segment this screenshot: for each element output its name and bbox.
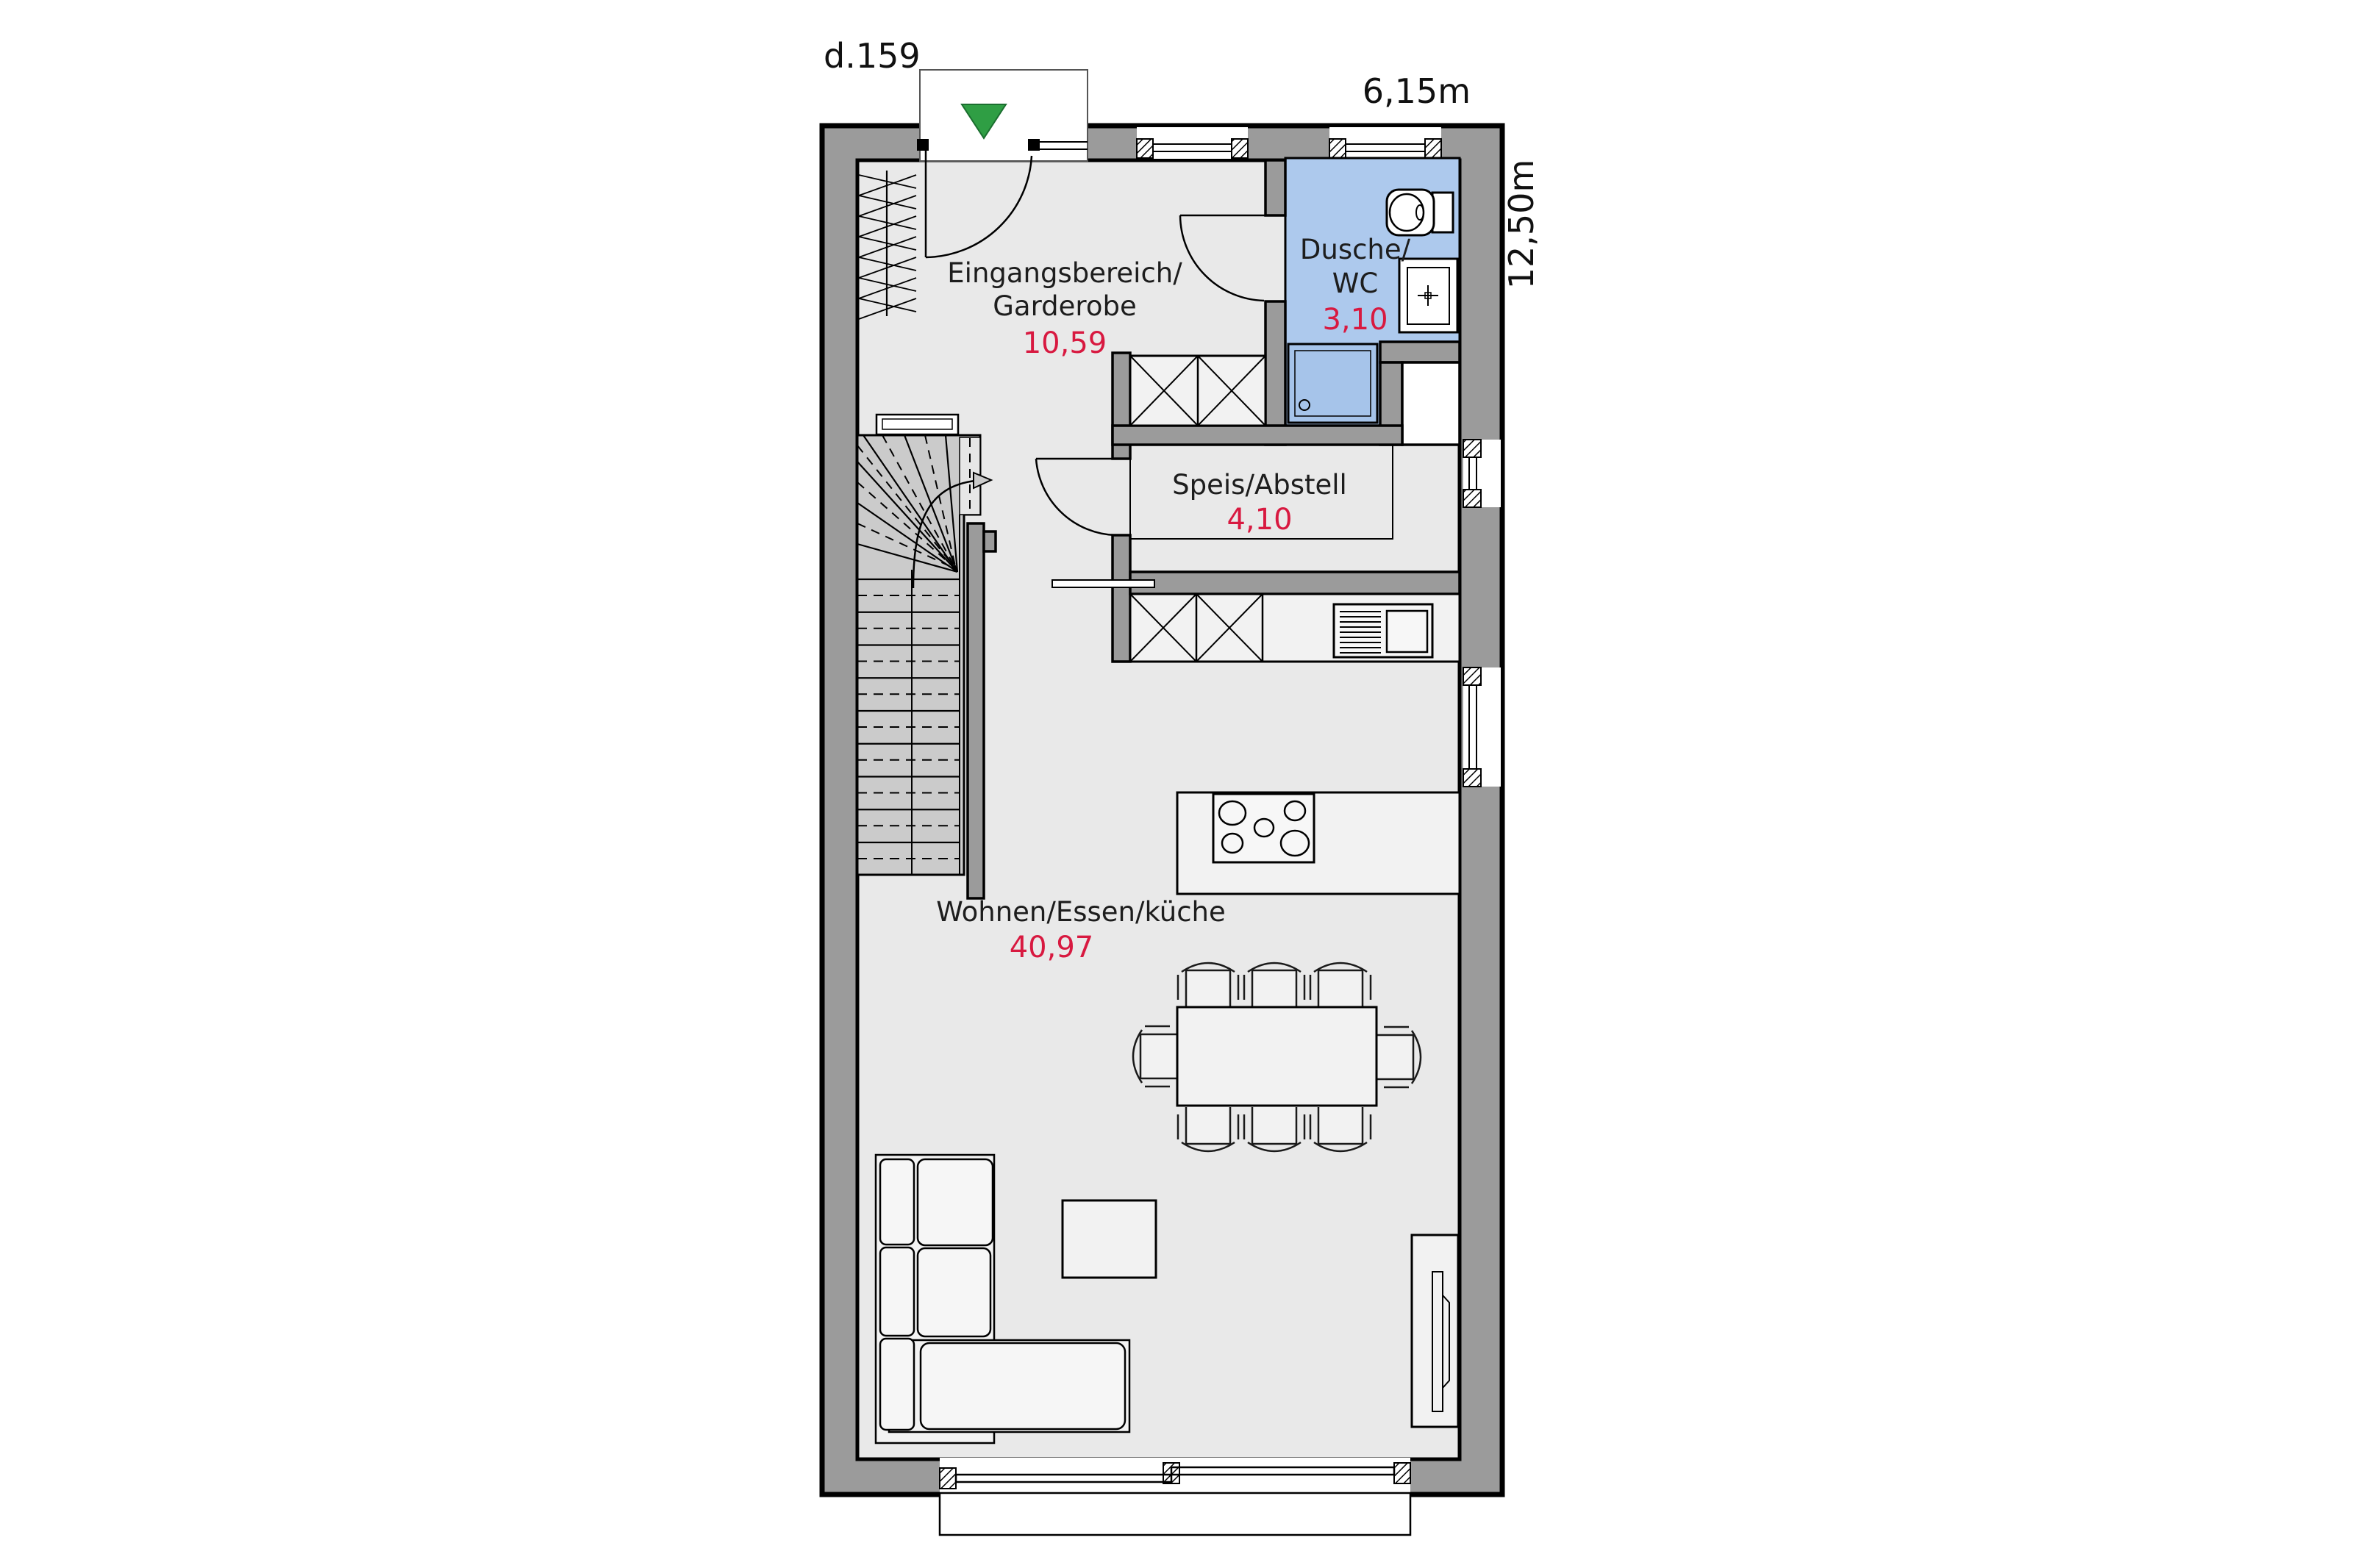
bath-label-2: WC	[1332, 268, 1378, 299]
floor-plan-page: d.159 6,15m 12,50m Eingangsbereich/ Gard…	[0, 0, 2353, 1568]
living-area: 40,97	[1010, 931, 1094, 964]
chair	[1178, 1107, 1238, 1151]
chair	[1310, 1107, 1371, 1151]
chair	[1178, 963, 1238, 1007]
stair-bench	[876, 415, 958, 434]
wall-kitchen	[1130, 572, 1460, 594]
entrance-label-1: Eingangsbereich/	[947, 257, 1182, 289]
chair	[1377, 1027, 1421, 1087]
side-table	[1063, 1200, 1156, 1278]
storage-area: 4,10	[1227, 503, 1292, 537]
duct-void	[1402, 362, 1460, 445]
door-jamb-right	[1028, 139, 1040, 151]
dining-table	[1177, 1007, 1377, 1106]
shower	[1288, 344, 1377, 423]
sideboard	[1412, 1235, 1458, 1427]
kitchen-sink-icon	[1334, 604, 1432, 657]
storage-label: Speis/Abstell	[1172, 469, 1347, 501]
wall-bath-lower	[1265, 301, 1285, 445]
depth-dimension: 12,50m	[1502, 160, 1541, 290]
stair-guard-wall	[968, 523, 984, 898]
entrance-label-2: Garderobe	[993, 290, 1136, 322]
wall-below-closet	[1113, 426, 1402, 445]
plan-title: d.159	[824, 36, 921, 76]
terrace-door	[940, 1458, 1410, 1535]
wall-left	[824, 127, 857, 1493]
living-label: Wohnen/Essen/küche	[936, 896, 1226, 928]
width-dimension: 6,15m	[1363, 71, 1471, 111]
stair-guard-knob	[984, 531, 996, 551]
bath-label-1: Dusche/	[1300, 234, 1411, 265]
window-right-2	[1463, 667, 1501, 787]
floor-plan-canvas: d.159 6,15m 12,50m Eingangsbereich/ Gard…	[0, 0, 2353, 1568]
door-jamb-left	[917, 139, 929, 151]
chair	[1244, 1107, 1304, 1151]
chair	[1310, 963, 1371, 1007]
terrace	[940, 1493, 1410, 1535]
toilet-icon	[1387, 190, 1453, 235]
sliding-door	[1052, 580, 1154, 587]
washbasin-icon	[1399, 259, 1457, 332]
window-right-1	[1463, 440, 1501, 507]
wall-junction-cap	[1113, 535, 1130, 662]
wall-bath-bottom-right	[1380, 342, 1460, 362]
cooktop-icon	[1213, 794, 1314, 862]
window-top-1	[1137, 127, 1248, 159]
entrance-recess	[920, 70, 1088, 161]
closet	[1130, 356, 1265, 426]
kitchen-counter	[1130, 594, 1460, 662]
wall-right	[1460, 127, 1501, 1493]
chair	[1244, 963, 1304, 1007]
window-top-2	[1329, 127, 1441, 159]
kitchen-island	[1177, 792, 1460, 894]
bath-area: 3,10	[1322, 303, 1388, 337]
wall-bath-upper	[1265, 160, 1285, 215]
entrance-area: 10,59	[1023, 326, 1107, 360]
chair	[1133, 1026, 1177, 1086]
